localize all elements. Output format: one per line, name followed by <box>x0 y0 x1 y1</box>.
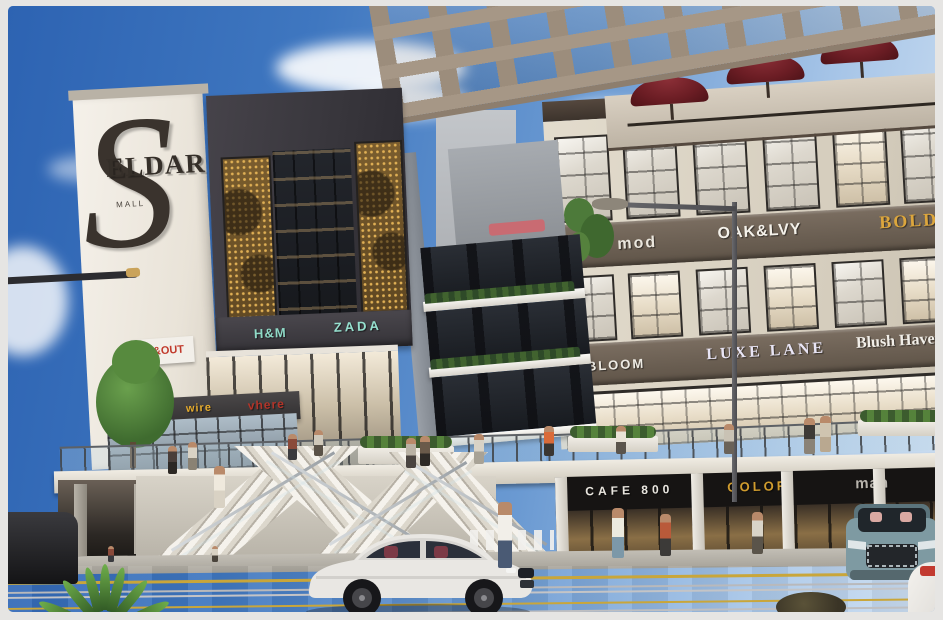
tree <box>112 340 160 384</box>
lamp-pole <box>732 202 737 502</box>
dark-tower: H&M ZADA <box>206 88 413 354</box>
window <box>899 255 935 324</box>
window <box>628 271 684 340</box>
sign-bold: BOLD <box>879 209 935 233</box>
sign-wire: wire <box>186 402 213 415</box>
person <box>168 446 177 474</box>
window <box>696 267 752 336</box>
logo-subtext: MALL <box>116 199 145 210</box>
person <box>188 442 197 470</box>
column <box>691 473 705 559</box>
sign-blush-haven: Blush Haven <box>855 330 935 353</box>
person <box>288 434 297 460</box>
window <box>763 263 819 332</box>
person <box>724 424 734 454</box>
person-crossing-street <box>498 502 512 568</box>
person <box>314 430 323 456</box>
agave-plant <box>28 566 188 612</box>
logo-text: ELDAR <box>105 148 206 184</box>
person <box>212 546 218 562</box>
terrace-planter <box>568 436 658 452</box>
window <box>831 259 887 328</box>
column <box>781 471 795 557</box>
sign-luxe-lane: LUXE LANE <box>706 340 827 365</box>
gold-perforated-panel <box>221 155 279 339</box>
person <box>660 514 671 556</box>
person <box>820 416 831 452</box>
person <box>544 426 554 456</box>
street-light-head <box>126 268 140 278</box>
render-scene: man mod OAK&LVY BOLD BLOOM LUXE LANE Blu… <box>8 6 935 612</box>
gold-perforated-panel <box>354 140 409 314</box>
image-frame: man mod OAK&LVY BOLD BLOOM LUXE LANE Blu… <box>0 0 943 620</box>
middle-building <box>394 138 599 464</box>
person <box>108 546 114 562</box>
sign-bloom: BLOOM <box>586 356 645 374</box>
terrace-planter <box>858 420 935 436</box>
tower-display-glass <box>272 148 358 337</box>
planter-bush <box>860 410 935 422</box>
sign-cafe-800: CAFE 800 <box>585 482 673 498</box>
person <box>406 438 416 468</box>
person <box>804 418 815 454</box>
planter-bush <box>570 426 656 438</box>
person <box>616 426 626 454</box>
lamp-head <box>592 198 628 210</box>
sign-vhere: vhere <box>247 397 285 413</box>
sign-zada: ZADA <box>333 318 382 335</box>
sign-hm: H&M <box>254 325 287 341</box>
sign-oak-and-lvy: OAK&LVY <box>717 221 802 244</box>
person <box>752 512 763 554</box>
car-taillight <box>920 566 935 576</box>
person <box>474 434 484 464</box>
person <box>420 436 430 466</box>
person <box>612 508 624 558</box>
person <box>214 466 225 508</box>
